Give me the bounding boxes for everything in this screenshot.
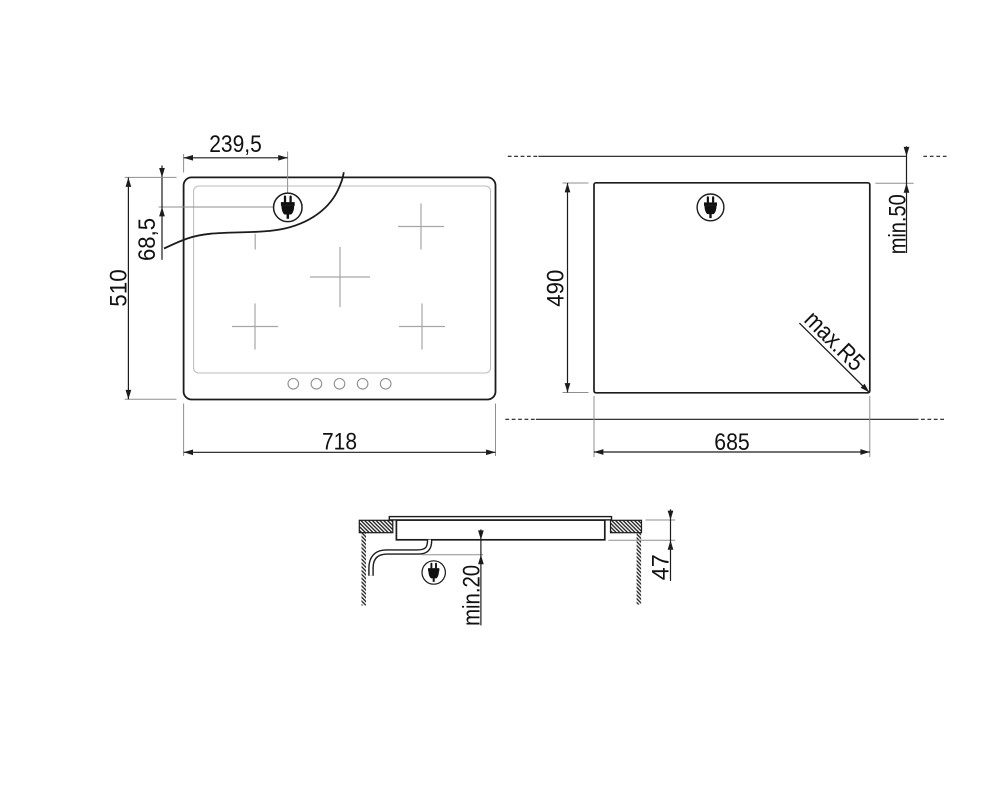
svg-text:685: 685 — [714, 429, 750, 456]
svg-text:min.20: min.20 — [458, 565, 485, 626]
svg-text:min.50: min.50 — [884, 194, 911, 254]
svg-text:718: 718 — [322, 429, 357, 456]
svg-text:68,5: 68,5 — [134, 218, 161, 261]
svg-text:47: 47 — [647, 554, 674, 580]
svg-text:239,5: 239,5 — [209, 131, 262, 158]
svg-text:510: 510 — [105, 269, 132, 307]
svg-text:490: 490 — [543, 270, 570, 307]
